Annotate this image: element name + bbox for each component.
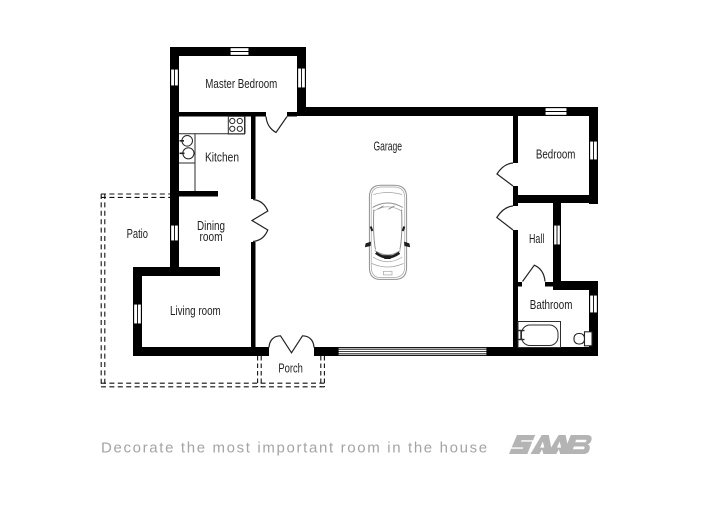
svg-text:Patio: Patio: [127, 227, 148, 241]
svg-text:Master Bedroom: Master Bedroom: [205, 77, 277, 91]
svg-text:Hall: Hall: [529, 232, 544, 246]
svg-text:Living room: Living room: [170, 304, 221, 318]
svg-text:Bathroom: Bathroom: [530, 298, 573, 312]
svg-text:Kitchen: Kitchen: [205, 151, 239, 165]
svg-text:Decorate the most important ro: Decorate the most important room in the …: [101, 440, 489, 457]
svg-text:Garage: Garage: [374, 140, 403, 154]
svg-text:Bedroom: Bedroom: [536, 148, 576, 162]
svg-text:room: room: [200, 230, 223, 244]
svg-text:Porch: Porch: [278, 362, 303, 376]
